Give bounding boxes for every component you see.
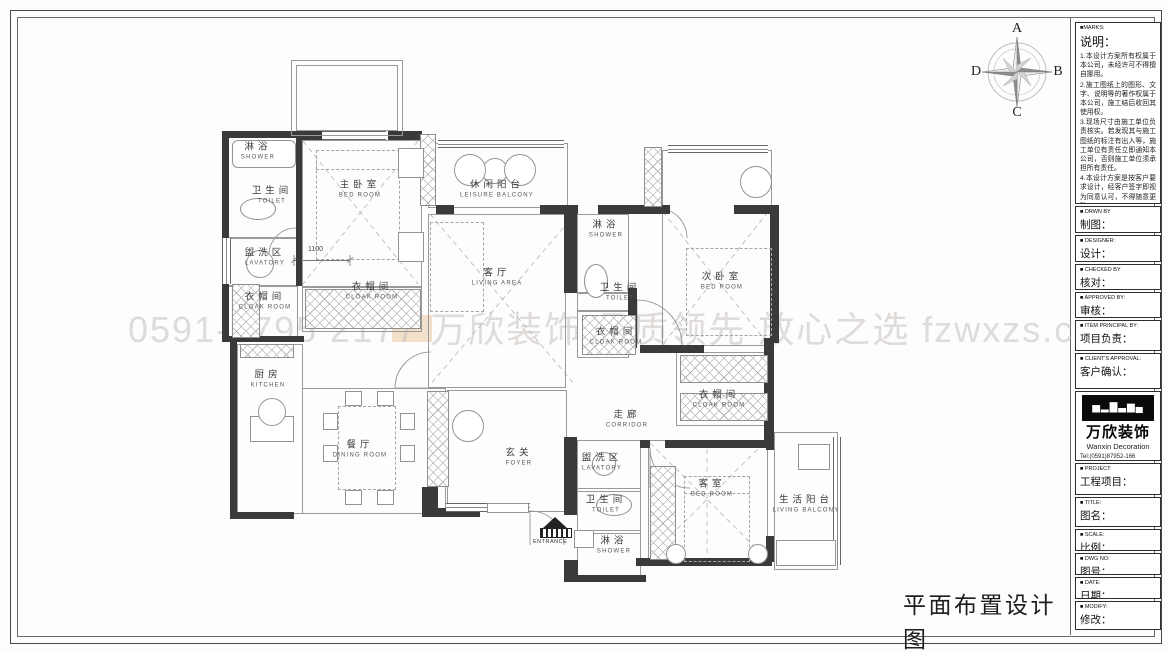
field-label: 制图： bbox=[1080, 217, 1156, 232]
field-label: 项目负责： bbox=[1080, 331, 1156, 346]
window bbox=[438, 140, 564, 148]
room-name-en: CLOAK ROOM bbox=[693, 402, 746, 410]
field-label: 比例： bbox=[1080, 540, 1156, 551]
info-row: ■ SCALE:比例： bbox=[1075, 529, 1161, 551]
info-row: ■ DWG NO:图号： bbox=[1075, 553, 1161, 575]
room-name-en: LEISURE BALCONY bbox=[460, 192, 534, 200]
room-name-en: CLOAK ROOM bbox=[346, 294, 399, 302]
compass-east-label: B bbox=[1053, 64, 1062, 80]
wall-segment bbox=[296, 138, 302, 286]
room-label: 厨房KITCHEN bbox=[251, 370, 286, 389]
furniture bbox=[400, 413, 415, 430]
entrance-arrow-icon bbox=[543, 517, 567, 528]
room-name-en: LAVATORY bbox=[245, 260, 286, 268]
company-name-en: Wanxin Decoration bbox=[1080, 442, 1156, 451]
floor-plan: 0591-8795 2177 万欣装饰 品质领先 放心之选 fzwxzs.com bbox=[0, 0, 1070, 653]
room-name-en: SHOWER bbox=[589, 232, 623, 240]
furniture-round bbox=[748, 544, 768, 564]
wall-segment bbox=[230, 456, 237, 518]
signature-row: ■ ITEM PRINCIPAL BY:项目负责： bbox=[1075, 320, 1161, 351]
field-tag: ■ CLIENT'S APPROVAL: bbox=[1080, 356, 1156, 362]
field-tag: ■ DESIGNER: bbox=[1080, 238, 1156, 244]
signature-row: ■ DESIGNER:设计： bbox=[1075, 235, 1161, 262]
furniture-dashed bbox=[430, 222, 484, 312]
room-name-cn: 主卧室 bbox=[339, 180, 381, 192]
field-label: 设计： bbox=[1080, 246, 1156, 261]
room-name-en: BED ROOM bbox=[701, 284, 743, 292]
marks-note-item: 2.施工图纸上的图形、文字、说明等的著作权属于本公司，施工结后收回其使用权。 bbox=[1080, 81, 1156, 118]
furniture bbox=[574, 530, 594, 548]
room-name-cn: 玄关 bbox=[505, 448, 532, 460]
room-label: 盥洗区LAVATORY bbox=[582, 453, 623, 472]
marks-box: ■MARKS: 说明： 1.本设计方案所有权属于本公司，未经许可不得擅自挪用。2… bbox=[1075, 22, 1161, 204]
company-tel1: Tel:(0591)87952-166 bbox=[1080, 453, 1156, 461]
wall-segment bbox=[222, 131, 229, 341]
info-row: ■ PROJECT:工程项目： bbox=[1075, 463, 1161, 495]
room-name-cn: 淋浴 bbox=[597, 536, 631, 548]
room-label: 衣帽间CLOAK ROOM bbox=[693, 390, 746, 409]
room-name-cn: 盥洗区 bbox=[582, 453, 623, 465]
room-name-en: LAVATORY bbox=[582, 465, 623, 473]
marks-note-item: 3.现场尺寸由施工单位负责核实。若发现其与施工图纸的标注有出入等，施工单位有责任… bbox=[1080, 118, 1156, 173]
room-name-cn: 餐厅 bbox=[333, 440, 388, 452]
cabinet-hatch bbox=[680, 355, 768, 383]
furniture-round bbox=[452, 410, 484, 442]
compass-south-label: C bbox=[1012, 105, 1021, 121]
wall-segment bbox=[640, 440, 650, 448]
room-name-cn: 衣帽间 bbox=[590, 327, 643, 339]
marks-notes: 1.本设计方案所有权属于本公司，未经许可不得擅自挪用。2.施工图纸上的图形、文字… bbox=[1080, 52, 1156, 204]
room-label: 走廊CORRIDOR bbox=[606, 410, 648, 429]
furniture-round bbox=[666, 544, 686, 564]
field-tag: ■ APPROVED BY: bbox=[1080, 295, 1156, 301]
room-label: 卫生间TOILET bbox=[252, 186, 293, 205]
field-label: 客户确认： bbox=[1080, 364, 1156, 379]
room-label: 淋浴SHOWER bbox=[241, 142, 275, 161]
furniture bbox=[400, 445, 415, 462]
furniture bbox=[776, 540, 836, 566]
wall-segment bbox=[230, 512, 294, 519]
room-name-cn: 卫生间 bbox=[252, 186, 293, 198]
wall-segment bbox=[436, 205, 454, 214]
field-tag: ■ DRWN BY bbox=[1080, 209, 1156, 215]
room-name-cn: 客室 bbox=[691, 479, 733, 491]
cabinet-hatch bbox=[644, 147, 662, 207]
furniture-round bbox=[740, 166, 772, 198]
entrance-label: ENTRANCE bbox=[533, 539, 567, 545]
info-row: ■ DATE:日期： bbox=[1075, 577, 1161, 599]
room-name-en: LIVING BALCONY bbox=[773, 507, 840, 515]
field-label: 图名： bbox=[1080, 508, 1156, 523]
furniture bbox=[377, 391, 394, 406]
room-name-en: CLOAK ROOM bbox=[239, 304, 292, 312]
room-name-en: SHOWER bbox=[597, 548, 631, 556]
room-name-en: FOYER bbox=[505, 460, 532, 468]
info-row: ■ TITLE:图名： bbox=[1075, 497, 1161, 527]
field-tag: ■ CHECKED BY bbox=[1080, 267, 1156, 273]
furniture-dashed bbox=[686, 248, 772, 336]
drawing-title: 平面布置设计图 bbox=[897, 586, 1070, 653]
wall-segment bbox=[564, 205, 577, 293]
cabinet-hatch bbox=[240, 344, 294, 358]
room-name-cn: 走廊 bbox=[606, 410, 648, 422]
entrance-steps bbox=[540, 528, 572, 538]
info-row: ■ MODIFY:修改： bbox=[1075, 601, 1161, 630]
room-name-en: TOILET bbox=[586, 507, 627, 515]
furniture bbox=[798, 444, 830, 470]
room-label: 卫生间TOILET bbox=[600, 283, 641, 302]
furniture bbox=[345, 391, 362, 406]
room-name-en: LIVING AREA bbox=[472, 280, 523, 288]
company-box: ▅▂▇▃▆▄ 万欣装饰 Wanxin Decoration Tel:(0591)… bbox=[1075, 391, 1161, 461]
room-name-en: SHOWER bbox=[241, 154, 275, 162]
field-label: 修改： bbox=[1080, 612, 1156, 627]
room-name-cn: 休闲阳台 bbox=[460, 180, 534, 192]
room-name-cn: 盥洗区 bbox=[245, 248, 286, 260]
marks-tag: ■MARKS: bbox=[1080, 25, 1156, 31]
wall-segment bbox=[564, 437, 577, 515]
room-label: 生活阳台LIVING BALCONY bbox=[773, 495, 840, 514]
room-label: 客室BED ROOM bbox=[691, 479, 733, 498]
furniture bbox=[487, 503, 529, 513]
room-name-cn: 衣帽间 bbox=[239, 292, 292, 304]
room-label: 次卧室BED ROOM bbox=[701, 272, 743, 291]
furniture bbox=[398, 232, 424, 262]
field-tag: ■ PROJECT: bbox=[1080, 466, 1156, 472]
furniture bbox=[345, 490, 362, 505]
field-label: 核对： bbox=[1080, 275, 1156, 290]
room-name-en: BED ROOM bbox=[691, 491, 733, 499]
furniture-round bbox=[258, 398, 286, 426]
room-name-cn: 厨房 bbox=[251, 370, 286, 382]
room-name-cn: 生活阳台 bbox=[773, 495, 840, 507]
room-label: 盥洗区LAVATORY bbox=[245, 248, 286, 267]
room-name-en: CORRIDOR bbox=[606, 422, 648, 430]
wall-segment bbox=[640, 345, 704, 353]
field-tag: ■ MODIFY: bbox=[1080, 604, 1156, 610]
signature-row: ■ DRWN BY制图： bbox=[1075, 206, 1161, 233]
room-label: 客厅LIVING AREA bbox=[472, 268, 523, 287]
room-label: 卫生间TOILET bbox=[586, 495, 627, 514]
room-name-en: TOILET bbox=[252, 198, 293, 206]
room-name-cn: 衣帽间 bbox=[693, 390, 746, 402]
room-name-cn: 客厅 bbox=[472, 268, 523, 280]
marks-note-item: 4.本设计方案是按客户要求设计，经客户签字即视为同意认可，不得随意更改。 bbox=[1080, 174, 1156, 204]
signature-row: ■ CLIENT'S APPROVAL:客户确认： bbox=[1075, 353, 1161, 389]
company-logo: ▅▂▇▃▆▄ bbox=[1082, 395, 1154, 421]
field-label: 图号： bbox=[1080, 564, 1156, 575]
room-name-en: KITCHEN bbox=[251, 382, 286, 390]
room-label: 衣帽间CLOAK ROOM bbox=[239, 292, 292, 311]
title-block-divider bbox=[1070, 17, 1071, 635]
field-tag: ■ ITEM PRINCIPAL BY: bbox=[1080, 323, 1156, 329]
room-name-en: BED ROOM bbox=[339, 192, 381, 200]
room-name-cn: 次卧室 bbox=[701, 272, 743, 284]
room-name-cn: 卫生间 bbox=[586, 495, 627, 507]
furniture-dashed bbox=[316, 150, 400, 170]
room-name-cn: 淋浴 bbox=[589, 220, 623, 232]
room-label: 衣帽间CLOAK ROOM bbox=[346, 282, 399, 301]
company-name-cn: 万欣装饰 bbox=[1080, 421, 1156, 442]
signature-row: ■ APPROVED BY:审核： bbox=[1075, 292, 1161, 318]
marks-heading: 说明： bbox=[1080, 33, 1156, 50]
field-label: 日期： bbox=[1080, 588, 1156, 599]
window bbox=[222, 238, 231, 284]
signature-row: ■ CHECKED BY核对： bbox=[1075, 264, 1161, 290]
room-label: 餐厅DINING ROOM bbox=[333, 440, 388, 459]
room-label: 主卧室BED ROOM bbox=[339, 180, 381, 199]
compass-north-label: A bbox=[1012, 21, 1022, 37]
room-name-en: DINING ROOM bbox=[333, 452, 388, 460]
room-label: 休闲阳台LEISURE BALCONY bbox=[460, 180, 534, 199]
room-name-cn: 淋浴 bbox=[241, 142, 275, 154]
wall-segment bbox=[766, 536, 774, 562]
field-tag: ■ DATE: bbox=[1080, 580, 1156, 586]
wall-segment bbox=[665, 440, 770, 448]
compass-icon bbox=[982, 37, 1052, 107]
room-label: 淋浴SHOWER bbox=[589, 220, 623, 239]
furniture bbox=[323, 413, 338, 430]
furniture bbox=[398, 148, 424, 178]
field-tag: ■ SCALE: bbox=[1080, 532, 1156, 538]
compass-west-label: D bbox=[971, 64, 981, 80]
room-name-en: TOILET bbox=[600, 295, 641, 303]
bay-window-inner bbox=[296, 65, 398, 131]
room-name-en: CLOAK ROOM bbox=[590, 339, 643, 347]
room-name-cn: 卫生间 bbox=[600, 283, 641, 295]
room-name-cn: 衣帽间 bbox=[346, 282, 399, 294]
field-tag: ■ DWG NO: bbox=[1080, 556, 1156, 562]
marks-note-item: 1.本设计方案所有权属于本公司，未经许可不得擅自挪用。 bbox=[1080, 52, 1156, 80]
wall-segment bbox=[230, 342, 237, 462]
room-label: 淋浴SHOWER bbox=[597, 536, 631, 555]
room-label: 衣帽间CLOAK ROOM bbox=[590, 327, 643, 346]
wall-segment bbox=[576, 575, 646, 582]
furniture bbox=[377, 490, 394, 505]
drawing-sheet: 0591-8795 2177 万欣装饰 品质领先 放心之选 fzwxzs.com bbox=[0, 0, 1170, 653]
cabinet-hatch bbox=[427, 391, 449, 487]
field-label: 审核： bbox=[1080, 303, 1156, 318]
field-tag: ■ TITLE: bbox=[1080, 500, 1156, 506]
room-label: 玄关FOYER bbox=[505, 448, 532, 467]
field-label: 工程项目： bbox=[1080, 474, 1156, 489]
window bbox=[668, 145, 768, 153]
